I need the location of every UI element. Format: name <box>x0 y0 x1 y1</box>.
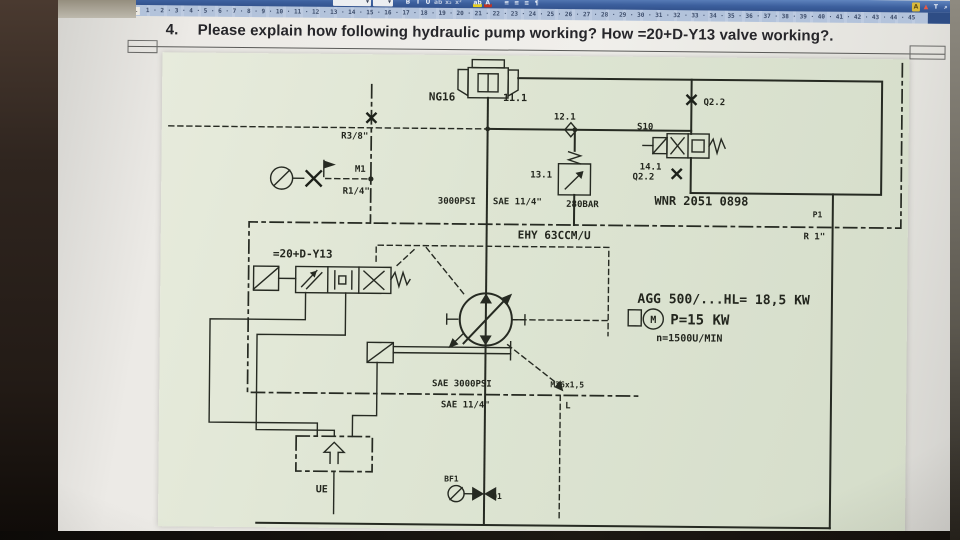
label-280bar: 280BAR <box>566 200 599 210</box>
font-name-dropdown[interactable]: ▾ <box>333 0 371 6</box>
underline-icon[interactable]: U <box>424 0 432 7</box>
superscript-icon[interactable]: x² <box>454 0 462 7</box>
label-q1: Q1 <box>492 492 502 501</box>
label-agg: AGG 500/...HL= 18,5 KW <box>637 292 810 309</box>
bold-icon[interactable]: B <box>404 0 412 7</box>
label-bf1: BF1 <box>444 474 459 483</box>
sort-icon[interactable]: T <box>932 3 940 12</box>
label-y13: =20+D-Y13 <box>273 247 333 261</box>
label-l-port: L <box>565 401 571 411</box>
align-center-icon[interactable]: ≡ <box>513 0 521 8</box>
label-m26: M26x1,5 <box>550 380 584 389</box>
photo-dark-edge-bottom <box>0 531 960 540</box>
align-left-icon[interactable]: ≡ <box>503 0 511 8</box>
label-power: P=15 KW <box>670 312 730 329</box>
find-icon[interactable]: ⌕ <box>942 3 950 12</box>
photo-edge-right <box>950 0 960 540</box>
y13-directional-valve: =20+D-Y13 <box>253 247 415 294</box>
label-r14: R1/4" <box>343 187 370 197</box>
label-12-1: 12.1 <box>554 113 576 123</box>
label-q22-bottom: Q2.2 <box>633 172 655 182</box>
subscript-icon[interactable]: x₂ <box>444 0 452 7</box>
label-speed: n=1500U/MIN <box>656 333 722 345</box>
label-r1: R 1" <box>803 232 825 242</box>
question-number: 4. <box>166 21 198 38</box>
label-ehy: EHY 63CCM/U <box>518 229 591 243</box>
breather-arrow-icon <box>324 442 344 463</box>
label-s10: S10 <box>637 122 653 132</box>
label-wnr: WNR 2051 0898 <box>654 194 748 209</box>
font-size-dropdown[interactable]: ▾ <box>373 0 393 6</box>
motor-coupling-icon <box>628 310 641 326</box>
font-color-icon[interactable]: A <box>484 0 492 7</box>
ng16-cartridge-valve-icon: NG16 11.1 <box>429 59 528 104</box>
word-document-page: ▾ ▾ B I U ab x₂ x² ab A ≡ ≡ ≡ ¶ A ▲ <box>58 0 952 533</box>
pressure-gauge-group: R3/8" M1 R1/4" <box>270 112 376 197</box>
motor-letter: M <box>650 315 656 326</box>
question-paragraph[interactable]: 4.Please explain how following hydraulic… <box>166 21 952 46</box>
label-q22-top: Q2.2 <box>703 98 725 108</box>
test-coupling-icon <box>306 170 322 186</box>
s10-solenoid-valve: Q2.2 S10 14.1 Q2.2 <box>633 94 726 183</box>
label-m1: M1 <box>355 165 366 175</box>
label-14-1: 14.1 <box>640 162 662 172</box>
label-13-1: 13.1 <box>530 170 552 180</box>
pump-icon <box>446 293 525 349</box>
strikethrough-icon[interactable]: ab <box>434 0 442 7</box>
align-right-icon[interactable]: ≡ <box>523 0 531 8</box>
tank-return-lines <box>209 292 378 437</box>
label-sae114-bottom: SAE 11/4" <box>441 400 490 410</box>
label-3000psi: 3000PSI <box>438 197 476 207</box>
screen-top-margin <box>58 0 136 18</box>
ruler-end-block <box>928 13 952 24</box>
label-r38: R3/8" <box>341 132 368 142</box>
question-text: Please explain how following hydraulic p… <box>198 22 834 45</box>
hydraulic-schematic-image[interactable]: NG16 11.1 R3/8" <box>158 52 910 533</box>
label-ng16: NG16 <box>429 90 456 103</box>
photo-of-monitor: ▾ ▾ B I U ab x₂ x² ab A ≡ ≡ ≡ ¶ A ▲ <box>0 0 960 540</box>
paragraph-icon[interactable]: ¶ <box>533 0 541 8</box>
motor-group: M AGG 500/...HL= 18,5 KW P=15 KW n=1500U… <box>628 292 810 346</box>
control-piston-icon <box>367 340 511 363</box>
change-case-icon[interactable]: ▲ <box>922 3 930 12</box>
orifice-icon: 12.1 <box>554 113 577 137</box>
label-ue: UE <box>316 484 328 495</box>
italic-icon[interactable]: I <box>414 0 422 7</box>
label-11-1: 11.1 <box>503 93 527 104</box>
ehy-pump-enclosure: EHY 63CCM/U <box>375 227 609 392</box>
tilted-screen-content: ▾ ▾ B I U ab x₂ x² ab A ≡ ≡ ≡ ¶ A ▲ <box>58 0 952 533</box>
highlight-icon[interactable]: ab <box>473 0 481 7</box>
label-sae114-top: SAE 11/4" <box>493 197 542 207</box>
tank-group: UE <box>295 436 372 514</box>
frame-handle-right <box>909 45 945 59</box>
photo-dark-edge-left <box>0 0 58 540</box>
drain-valve-group: BF1 Q1 <box>444 474 502 502</box>
frame-handle-left <box>127 40 157 53</box>
label-p1: P1 <box>813 210 823 219</box>
styles-icon[interactable]: A <box>912 2 920 11</box>
label-sae3000: SAE 3000PSI <box>432 379 492 390</box>
hydraulic-schematic: NG16 11.1 R3/8" <box>158 52 910 533</box>
